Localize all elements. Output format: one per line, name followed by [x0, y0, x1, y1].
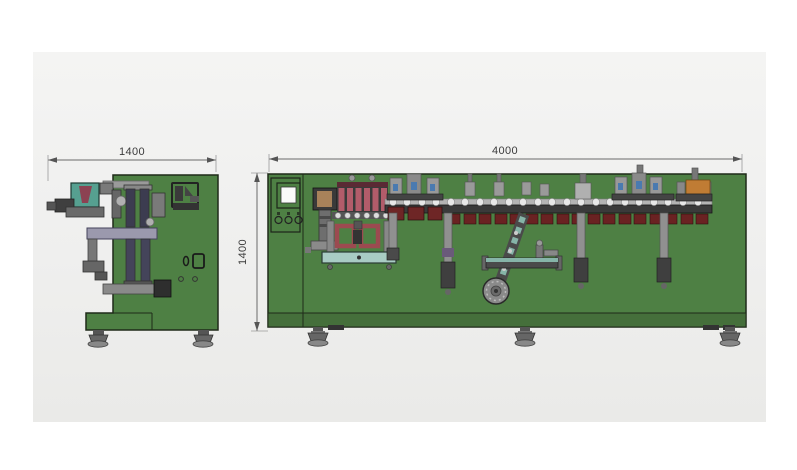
- side-view-machine: [47, 175, 218, 347]
- dimension-arrow-left: [269, 156, 278, 162]
- leveling-foot: [515, 327, 535, 346]
- magazine-stack: [317, 191, 332, 207]
- transfer-bar: [87, 228, 157, 239]
- front-view-height-dimension: 1400: [237, 173, 268, 331]
- dimension-arrow-right: [207, 157, 216, 163]
- front-view-height-label: 1400: [237, 239, 249, 265]
- cabinet-base-strip: [268, 313, 746, 327]
- front-view-width-dimension: 4000: [269, 145, 742, 172]
- side-view-feet: [88, 330, 213, 347]
- side-view: 1400: [47, 146, 218, 347]
- leveling-foot: [308, 327, 328, 346]
- hmi-screen: [281, 187, 296, 203]
- discharge-station: [676, 168, 712, 201]
- front-view-machine: [268, 165, 746, 346]
- dimension-arrow-bottom: [254, 322, 260, 331]
- outfeed-belt: [486, 258, 558, 262]
- machine-technical-drawing: 1400: [0, 0, 797, 470]
- front-view-width-label: 4000: [492, 145, 518, 157]
- side-view-width-label: 1400: [119, 146, 145, 158]
- dimension-arrow-left: [48, 157, 57, 163]
- roller-cap-bar: [337, 182, 388, 187]
- orange-block: [686, 180, 710, 194]
- dimension-arrow-top: [254, 173, 260, 182]
- drawing-page: 1400: [0, 0, 797, 470]
- dimension-arrow-right: [733, 156, 742, 162]
- front-view-feet: [308, 325, 740, 346]
- front-view: 4000 1400: [237, 145, 746, 346]
